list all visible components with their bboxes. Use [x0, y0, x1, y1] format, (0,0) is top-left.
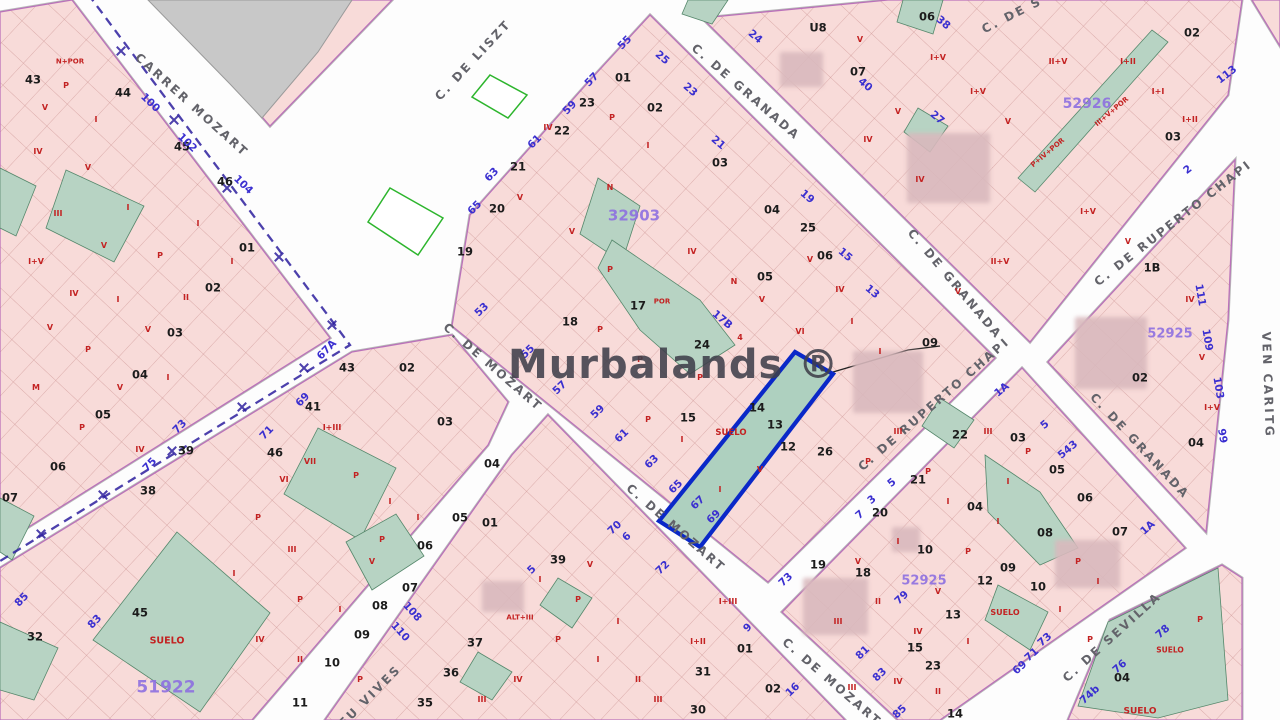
land-use-code: SUELO — [715, 429, 746, 438]
parcel-number: 21 — [910, 474, 926, 486]
land-use-code: V — [807, 256, 813, 264]
land-use-code: I+II — [1182, 116, 1198, 124]
land-use-code: V — [47, 324, 53, 332]
parcel-number: 06 — [919, 11, 935, 23]
land-use-code: VII — [304, 458, 316, 466]
land-use-code: SUELO — [150, 636, 185, 646]
land-use-code: V — [935, 588, 941, 596]
land-use-code: III — [834, 618, 843, 626]
land-use-code: N+POR — [56, 59, 84, 66]
cadastral-map[interactable]: CARRER MOZARTC. DE LISZTC. DE GRANADAC. … — [0, 0, 1280, 720]
street-address-number: 63 — [483, 166, 501, 184]
parcel-number: 02 — [1132, 372, 1148, 384]
parcel-number: 04 — [1188, 437, 1204, 449]
street-address-number: 111 — [1193, 283, 1207, 306]
parcel-number: 14 — [947, 708, 963, 720]
land-use-code: I — [197, 220, 200, 228]
cadastral-block-number: 32903 — [608, 209, 660, 224]
parcel-number: 22 — [952, 429, 968, 441]
street-address-number: 9 — [742, 622, 755, 635]
land-use-code: P — [865, 458, 871, 466]
street-name-label: C. DE RUPERTO CHAPI — [1092, 158, 1254, 288]
parcel-number: 11 — [292, 697, 308, 709]
land-use-code: I — [389, 498, 392, 506]
land-use-code: P — [609, 114, 615, 122]
parcel-number: 06 — [1077, 492, 1093, 504]
parcel-number: 09 — [1000, 562, 1016, 574]
privacy-blur-box — [482, 581, 524, 612]
land-use-code: II — [875, 598, 881, 606]
land-use-code: P — [357, 676, 363, 684]
street-address-number: 40 — [856, 76, 874, 93]
street-address-number: 38 — [934, 14, 952, 31]
parcel-number: 03 — [712, 157, 728, 169]
land-use-code: I — [851, 318, 854, 326]
street-address-number: 61 — [613, 427, 631, 445]
land-use-code: IV — [835, 286, 844, 294]
parcel-number: 06 — [50, 461, 66, 473]
parcel-number: 20 — [489, 203, 505, 215]
parcel-number: 25 — [800, 222, 816, 234]
parcel-number: 03 — [1010, 432, 1026, 444]
street-address-number: 1A — [993, 381, 1012, 399]
street-address-number: 16 — [784, 681, 802, 699]
parcel-number: 18 — [855, 567, 871, 579]
street-address-number: 108 — [401, 600, 423, 623]
land-use-code: IV — [69, 290, 78, 298]
land-use-code: V — [955, 288, 961, 296]
land-use-code: P — [85, 346, 91, 354]
parcel-number: 44 — [115, 87, 131, 99]
land-use-code: III — [54, 210, 63, 218]
parcel-number: 26 — [817, 446, 833, 458]
street-address-number: 24 — [746, 28, 764, 45]
land-use-code: I+V — [28, 258, 44, 266]
street-address-number: 6 — [621, 531, 634, 544]
street-address-number: 27 — [928, 109, 946, 126]
land-use-code: I+II — [690, 638, 706, 646]
land-use-code: II+V — [991, 258, 1010, 266]
land-use-code: V — [42, 104, 48, 112]
land-use-code: VI — [795, 328, 804, 336]
land-use-code: V — [85, 164, 91, 172]
land-use-code: V — [857, 36, 863, 44]
street-address-number: 73 — [777, 571, 795, 589]
parcel-number: 04 — [484, 458, 500, 470]
land-use-code: V — [587, 561, 593, 569]
parcel-number: 10 — [1030, 581, 1046, 593]
land-use-code: I — [597, 656, 600, 664]
land-use-code: I — [539, 576, 542, 584]
parcel-number: 23 — [925, 660, 941, 672]
land-use-code: P — [607, 266, 613, 274]
land-use-code: I — [233, 570, 236, 578]
street-address-number: 65 — [667, 478, 685, 496]
parcel-number: 39 — [550, 554, 566, 566]
land-use-code: N — [731, 278, 738, 286]
parcel-number: 14 — [749, 402, 765, 414]
parcel-number: 02 — [647, 102, 663, 114]
land-use-code: VI — [279, 476, 288, 484]
land-use-code: IV — [687, 248, 696, 256]
land-use-code: I — [127, 204, 130, 212]
cadastral-block-number: 52926 — [1063, 97, 1112, 111]
land-use-code: P — [1087, 636, 1093, 644]
parcel-number: 05 — [452, 512, 468, 524]
street-address-number: 69 — [1011, 659, 1029, 677]
street-address-number: 75 — [141, 456, 159, 474]
land-use-code: IV — [255, 636, 264, 644]
land-use-code: P — [925, 468, 931, 476]
parcel-number: 30 — [690, 704, 706, 716]
street-address-number: 53 — [473, 301, 491, 319]
parcel-number: 03 — [167, 327, 183, 339]
parcel-number: 23 — [579, 97, 595, 109]
land-use-code: I+V — [970, 88, 986, 96]
parcel-number: 04 — [132, 369, 148, 381]
street-address-number: 19 — [798, 188, 816, 205]
street-address-number: 100 — [138, 92, 161, 115]
land-use-code: P — [353, 472, 359, 480]
parcel-number: 36 — [443, 667, 459, 679]
land-use-code: I — [647, 142, 650, 150]
street-address-number: 85 — [891, 703, 909, 720]
land-use-code: P — [645, 416, 651, 424]
land-use-code: I+V — [1204, 404, 1220, 412]
street-address-number: 103 — [1211, 376, 1225, 399]
parcel-number: 04 — [764, 204, 780, 216]
land-use-code: V — [1199, 354, 1205, 362]
parcel-number: 05 — [757, 271, 773, 283]
parcel-number: 39 — [178, 445, 194, 457]
land-use-code: V — [101, 242, 107, 250]
land-use-code: I — [997, 518, 1000, 526]
parcel-number: 37 — [467, 637, 483, 649]
street-name-label: C. DE MOZART — [624, 482, 728, 574]
land-use-code: IV — [513, 676, 522, 684]
land-use-code: V — [855, 558, 861, 566]
land-use-code: III — [288, 546, 297, 554]
land-use-code: II — [935, 688, 941, 696]
street-name-label: C. DE LISZT — [433, 18, 513, 103]
street-address-number: 85 — [13, 591, 31, 609]
parcel-number: 02 — [205, 282, 221, 294]
street-address-number: 74b — [1078, 684, 1101, 707]
parcel-number: 01 — [615, 72, 631, 84]
street-address-number: 81 — [854, 644, 872, 662]
street-address-number: 25 — [653, 49, 671, 66]
parcel-number: 46 — [217, 176, 233, 188]
parcel-number: 01 — [239, 242, 255, 254]
parcel-number: 13 — [767, 419, 783, 431]
street-address-number: 71 — [258, 424, 276, 442]
parcel-number: 19 — [810, 559, 826, 571]
land-use-code: IV — [893, 678, 902, 686]
privacy-blur-box — [1055, 540, 1120, 588]
land-use-code: I — [681, 436, 684, 444]
land-use-code: ALT+III — [506, 615, 533, 622]
land-use-code: I — [167, 374, 170, 382]
land-use-code: P — [965, 548, 971, 556]
street-address-number: 83 — [871, 666, 889, 684]
land-use-code: SUELO — [1123, 708, 1156, 717]
street-address-number: 109 — [1200, 328, 1214, 351]
street-name-label: C. DE GRANADA — [906, 227, 1005, 341]
street-address-number: 59 — [561, 99, 579, 117]
street-name-label: EU VIVES — [337, 663, 403, 720]
street-address-number: 72 — [654, 559, 672, 577]
land-use-code: SUELO — [990, 609, 1019, 617]
street-address-number: 17B — [710, 309, 734, 332]
land-use-code: IV — [33, 148, 42, 156]
land-use-code: V — [1005, 118, 1011, 126]
street-address-number: 65 — [466, 199, 484, 217]
street-address-number: 5 — [526, 564, 539, 577]
land-use-code: I+I — [1152, 88, 1165, 96]
land-use-code: I — [1097, 578, 1100, 586]
parcel-number: 10 — [917, 544, 933, 556]
parcel-number: 12 — [977, 575, 993, 587]
parcel-number: 20 — [872, 507, 888, 519]
land-use-code: POR — [654, 299, 670, 306]
land-use-code: II — [183, 294, 189, 302]
parcel-number: 03 — [1165, 131, 1181, 143]
land-use-code: V — [569, 228, 575, 236]
parcel-number: 08 — [1037, 527, 1053, 539]
street-address-number: 71 — [1023, 646, 1041, 664]
land-use-code: I — [967, 638, 970, 646]
land-use-code: SUELO — [1156, 646, 1184, 654]
parcel-number: 18 — [562, 316, 578, 328]
privacy-blur-box — [907, 133, 990, 203]
street-address-number: 21 — [709, 134, 727, 151]
street-address-number: 543 — [1056, 439, 1080, 461]
street-address-number: 110 — [389, 620, 411, 643]
land-use-code: V — [369, 558, 375, 566]
land-use-code: V — [895, 108, 901, 116]
land-use-code: I — [117, 296, 120, 304]
parcel-number: 12 — [780, 441, 796, 453]
land-use-code: P — [157, 252, 163, 260]
parcel-number: 07 — [402, 582, 418, 594]
land-use-code: IV — [135, 446, 144, 454]
street-address-number: 73 — [171, 418, 189, 436]
land-use-code: P — [1197, 616, 1203, 624]
parcel-number: 01 — [482, 517, 498, 529]
street-address-number: 2 — [1182, 164, 1194, 177]
land-use-code: II+V — [1049, 58, 1068, 66]
land-use-code: IV — [863, 136, 872, 144]
street-address-number: 59 — [589, 403, 607, 421]
land-use-code: III — [478, 696, 487, 704]
land-use-code: P — [255, 514, 261, 522]
street-address-number: 5 — [1039, 419, 1051, 432]
land-use-code: IV — [913, 628, 922, 636]
parcel-number: 02 — [1184, 27, 1200, 39]
watermark: Murbalands ® — [508, 342, 839, 388]
street-address-number: 104 — [231, 174, 254, 197]
parcel-number: 19 — [457, 246, 473, 258]
land-use-code: IV — [1185, 296, 1194, 304]
cadastral-block-number: 52925 — [1147, 328, 1192, 341]
land-use-code: P — [1075, 558, 1081, 566]
land-use-code: III — [654, 696, 663, 704]
land-use-code: I — [947, 498, 950, 506]
street-name-label: C. DE S — [980, 0, 1044, 35]
land-use-code: III — [984, 428, 993, 436]
parcel-number: 43 — [25, 74, 41, 86]
street-address-number: 57 — [583, 71, 601, 89]
street-name-label: C. DE GRANADA — [1088, 391, 1192, 501]
street-address-number: 23 — [681, 81, 699, 98]
parcel-number: U8 — [809, 22, 826, 34]
parcel-number: 21 — [510, 161, 526, 173]
parcel-number: 01 — [737, 643, 753, 655]
street-address-number: 61 — [526, 133, 544, 151]
cadastral-block-number: 51922 — [136, 680, 195, 697]
street-address-number: 55 — [616, 34, 634, 52]
land-use-code: P — [79, 424, 85, 432]
parcel-number: 05 — [95, 409, 111, 421]
land-use-code: I+II — [1120, 58, 1136, 66]
land-use-code: I — [339, 606, 342, 614]
land-use-code: I — [95, 116, 98, 124]
land-use-code: IV — [543, 124, 552, 132]
land-use-code: I — [897, 538, 900, 546]
land-use-code: II — [635, 676, 641, 684]
parcel-number: 03 — [437, 416, 453, 428]
parcel-number: 08 — [372, 600, 388, 612]
parcel-number: 43 — [339, 362, 355, 374]
land-use-code: P — [597, 326, 603, 334]
parcel-number: 04 — [967, 501, 983, 513]
land-use-code: I+V — [1080, 208, 1096, 216]
street-address-number: 99 — [1216, 428, 1229, 444]
land-use-code: V — [145, 326, 151, 334]
street-address-number: 79 — [893, 589, 911, 607]
parcel-number: 02 — [399, 362, 415, 374]
street-address-number: 1A — [1139, 519, 1157, 537]
parcel-number: 46 — [267, 447, 283, 459]
street-address-number: 13 — [863, 283, 881, 300]
street-address-number: 63 — [643, 453, 661, 471]
street-address-number: 113 — [1215, 64, 1239, 86]
parcel-number: 38 — [140, 485, 156, 497]
street-address-number: 67A — [315, 338, 338, 362]
parcel-number: 31 — [695, 666, 711, 678]
parcel-number: 22 — [554, 125, 570, 137]
land-use-code: P — [555, 636, 561, 644]
cadastral-block-number: 52925 — [901, 575, 946, 588]
parcel-number: 15 — [907, 642, 923, 654]
land-use-code: I — [879, 348, 882, 356]
land-use-code: I — [417, 514, 420, 522]
street-address-number: 73 — [1036, 631, 1054, 649]
privacy-blur-box — [853, 351, 923, 413]
map-label-layer: CARRER MOZARTC. DE LISZTC. DE GRANADAC. … — [0, 0, 1280, 720]
land-use-code: P+IV+POR — [1030, 137, 1066, 169]
parcel-number: 09 — [354, 629, 370, 641]
land-use-code: P — [297, 596, 303, 604]
land-use-code: I — [1059, 606, 1062, 614]
land-use-code: I — [231, 258, 234, 266]
land-use-code: III — [848, 684, 857, 692]
parcel-number: 02 — [765, 683, 781, 695]
parcel-number: 32 — [27, 631, 43, 643]
privacy-blur-box — [780, 52, 823, 87]
parcel-number: 06 — [817, 250, 833, 262]
parcel-number: 45 — [132, 607, 148, 619]
parcel-number: 10 — [324, 657, 340, 669]
street-address-number: 67 — [689, 494, 707, 512]
parcel-number: 17 — [630, 300, 646, 312]
land-use-code: P — [575, 596, 581, 604]
land-use-code: V — [759, 296, 765, 304]
parcel-number: 06 — [417, 540, 433, 552]
land-use-code: M — [32, 384, 40, 392]
parcel-number: 13 — [945, 609, 961, 621]
land-use-code: I+III — [719, 598, 738, 606]
land-use-code: I+III — [323, 424, 342, 432]
land-use-code: 4 — [737, 334, 743, 342]
privacy-blur-box — [803, 578, 868, 635]
parcel-number: 09 — [922, 337, 938, 349]
land-use-code: III — [894, 428, 903, 436]
street-address-number: 69 — [705, 508, 723, 526]
land-use-code: N — [607, 184, 614, 192]
street-address-number: 5 — [886, 477, 898, 490]
parcel-number: 15 — [680, 412, 696, 424]
land-use-code: I — [1007, 478, 1010, 486]
land-use-code: V — [1125, 238, 1131, 246]
land-use-code: II — [297, 656, 303, 664]
parcel-number: 1B — [1144, 262, 1161, 274]
land-use-code: I — [617, 618, 620, 626]
street-address-number: 15 — [836, 246, 854, 263]
street-address-number: 7 — [854, 509, 866, 522]
land-use-code: P — [379, 536, 385, 544]
land-use-code: I+V — [930, 54, 946, 62]
parcel-number: 07 — [2, 492, 18, 504]
land-use-code: V — [117, 384, 123, 392]
land-use-code: V — [517, 194, 523, 202]
parcel-number: 05 — [1049, 464, 1065, 476]
street-address-number: 83 — [86, 613, 104, 631]
land-use-code: V — [757, 466, 763, 474]
parcel-number: 07 — [1112, 526, 1128, 538]
land-use-code: P — [63, 82, 69, 90]
street-name-label: VEN CARITG — [1260, 332, 1276, 439]
street-address-number: 78 — [1154, 623, 1172, 641]
land-use-code: P — [1025, 448, 1031, 456]
land-use-code: IV — [915, 176, 924, 184]
land-use-code: I — [719, 486, 722, 494]
parcel-number: 35 — [417, 697, 433, 709]
